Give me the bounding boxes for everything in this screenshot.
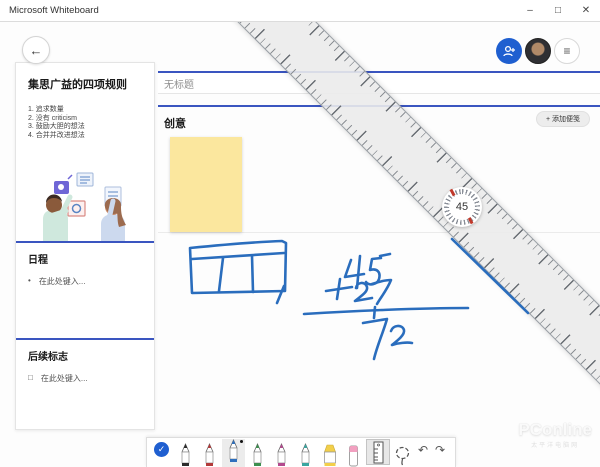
ink-table-divider-1 — [219, 258, 223, 291]
ruler-angle-value: 45 — [456, 201, 468, 213]
ink-plus-v — [337, 279, 340, 299]
watermark-brand: PConline — [518, 420, 592, 440]
maximize-button[interactable]: □ — [544, 0, 572, 21]
lasso-select[interactable] — [391, 439, 414, 467]
green-pen[interactable] — [246, 439, 269, 467]
back-button[interactable]: ← — [22, 36, 50, 64]
sticky-note[interactable] — [170, 137, 242, 232]
ink-digit-4-stem — [357, 256, 360, 288]
rule-item: 4. 合并并改进想法 — [28, 132, 142, 141]
hamburger-icon: ≡ — [563, 44, 570, 58]
ink-result-2 — [391, 326, 412, 345]
ink-table-header-line — [192, 253, 284, 259]
add-note-button[interactable]: + 添加便笺 — [536, 111, 590, 127]
ink-table-divider-2 — [252, 256, 253, 292]
magenta-pen[interactable] — [270, 439, 293, 467]
menu-button[interactable]: ≡ — [554, 38, 580, 64]
blue-pen[interactable] — [222, 439, 245, 467]
agenda-title: 日程 — [16, 243, 154, 270]
black-pen[interactable] — [174, 439, 197, 467]
pen-toolbar: ✓ — [146, 437, 456, 467]
window-titlebar: Microsoft Whiteboard – □ ✕ — [0, 0, 600, 22]
followup-placeholder[interactable]: 在此处键入... — [41, 373, 88, 384]
app-title: Microsoft Whiteboard — [0, 5, 516, 16]
ink-plus-h — [326, 287, 352, 291]
template-title: 集思广益的四项规则 — [16, 63, 154, 98]
brainstorm-rules-list: 1. 追求数量 2. 没有 criticism 3. 鼓励大胆的想法 4. 合并… — [16, 98, 154, 140]
pconline-watermark: PConline 太平洋电脑网 — [518, 420, 592, 449]
rule-item: 3. 鼓励大胆的想法 — [28, 123, 142, 132]
ink-digit-4 — [345, 260, 364, 277]
redo-button[interactable]: ↷ — [432, 443, 448, 463]
ruler-angle-dial[interactable]: 45 — [442, 187, 482, 227]
ink-result-7-tick — [374, 307, 375, 318]
followup-section: 后续标志 □ 在此处键入... — [16, 338, 154, 429]
minimize-button[interactable]: – — [516, 0, 544, 21]
highlighter-icon — [322, 443, 338, 467]
ink-digit-2 — [355, 283, 372, 301]
agenda-placeholder[interactable]: 在此处键入... — [39, 276, 86, 287]
rule-item: 1. 追求数量 — [28, 106, 142, 115]
rule-item: 2. 没有 criticism — [28, 115, 142, 124]
ink-digit-7 — [372, 280, 391, 304]
checkbox-marker[interactable]: □ — [28, 373, 33, 384]
eraser-icon — [346, 443, 361, 467]
pen-icon — [274, 443, 289, 467]
pen-icon — [178, 443, 193, 467]
pen-icon — [298, 443, 313, 467]
ink-sum-line — [304, 308, 468, 314]
board-title-placeholder: 无标题 — [158, 76, 194, 91]
eraser[interactable] — [342, 439, 365, 467]
watermark-subtext: 太平洋电脑网 — [518, 440, 592, 449]
bullet-marker: • — [28, 276, 31, 287]
lasso-icon — [394, 445, 411, 467]
highlighter[interactable] — [318, 439, 341, 467]
followup-title: 后续标志 — [16, 340, 154, 367]
red-pen[interactable] — [198, 439, 221, 467]
ink-digit-5-bar — [380, 254, 390, 256]
pen-icon — [226, 439, 241, 463]
whiteboard-canvas[interactable]: 无标题 创意 + 添加便笺 45 — [0, 22, 600, 467]
ink-table-tail — [277, 286, 284, 303]
brainstorm-template-card[interactable]: 集思广益的四项规则 1. 追求数量 2. 没有 criticism 3. 鼓励大… — [15, 62, 155, 430]
user-avatar[interactable] — [525, 38, 551, 64]
ink-digit-5 — [366, 258, 381, 284]
ruler-icon — [371, 441, 385, 464]
teal-pen[interactable] — [294, 439, 317, 467]
close-button[interactable]: ✕ — [572, 0, 600, 21]
ink-table-outline — [190, 241, 286, 293]
pen-icon — [202, 443, 217, 467]
ink-mode-check-button[interactable]: ✓ — [154, 442, 169, 457]
undo-button[interactable]: ↶ — [415, 443, 431, 463]
person-add-icon — [502, 44, 516, 58]
ink-result-7 — [363, 319, 387, 359]
invite-button[interactable] — [496, 38, 522, 64]
ruler-tool-button[interactable] — [366, 439, 390, 465]
agenda-section: 日程 • 在此处键入... — [16, 241, 154, 338]
pen-icon — [250, 443, 265, 467]
back-arrow-icon: ← — [30, 43, 43, 58]
